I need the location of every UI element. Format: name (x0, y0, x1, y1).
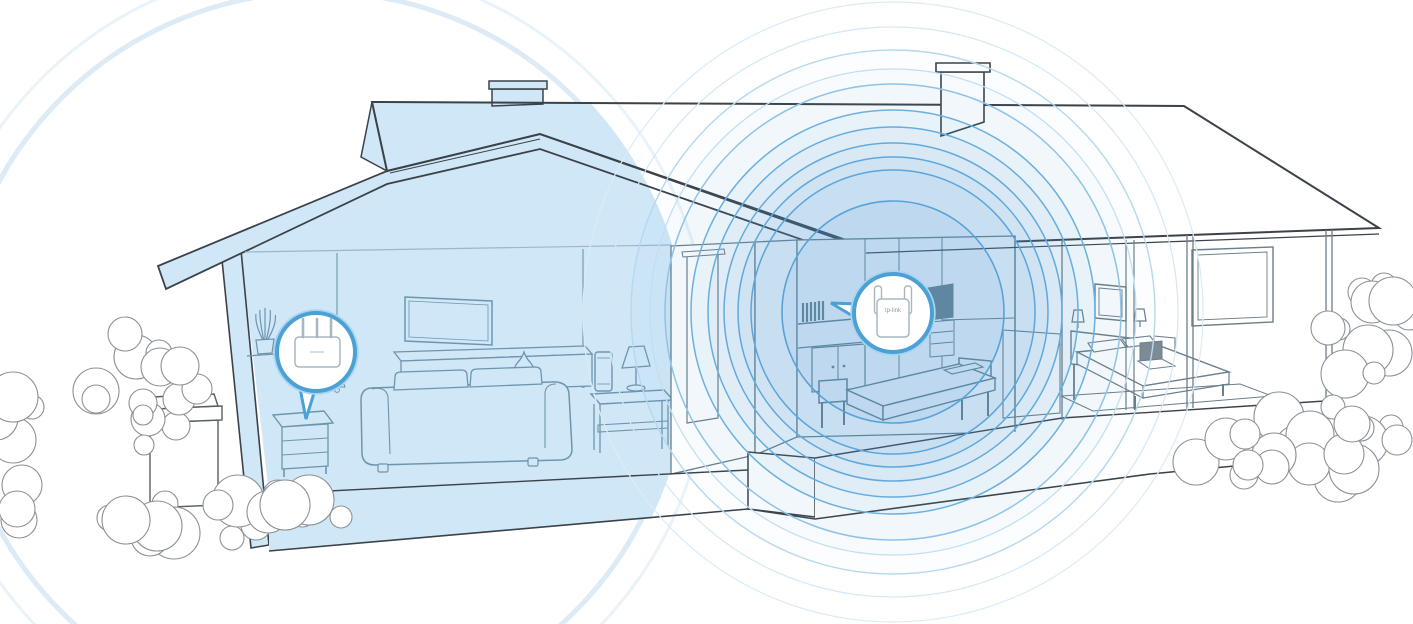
svg-text:tp-link: tp-link (885, 308, 902, 314)
